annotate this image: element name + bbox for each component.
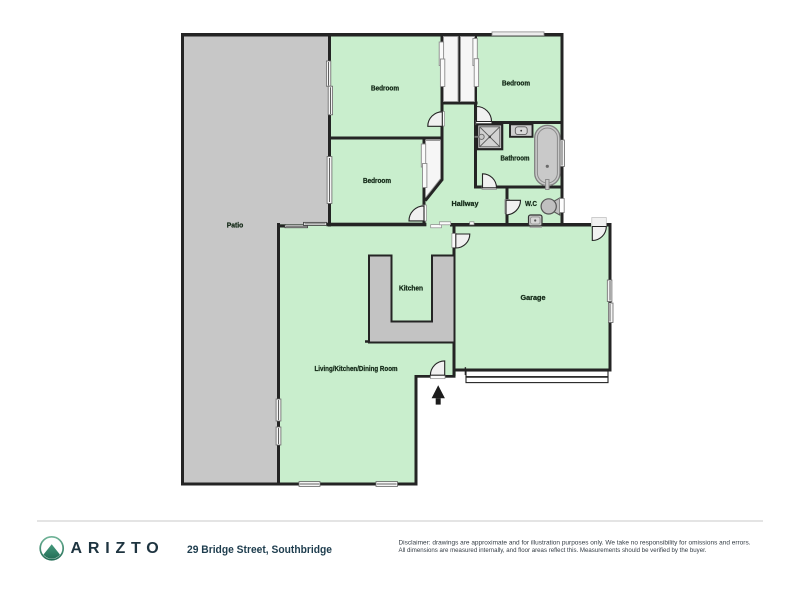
svg-text:ARIZTO: ARIZTO bbox=[71, 540, 165, 557]
svg-text:29 Bridge Street, Southbridge: 29 Bridge Street, Southbridge bbox=[187, 544, 332, 556]
svg-text:Bedroom: Bedroom bbox=[371, 86, 399, 93]
svg-text:All dimensions are measured in: All dimensions are measured internally, … bbox=[399, 547, 707, 554]
svg-text:Bathroom: Bathroom bbox=[501, 156, 530, 163]
svg-text:Disclaimer: drawings are appro: Disclaimer: drawings are approximate and… bbox=[399, 539, 751, 546]
svg-text:Living/Kitchen/Dining Room: Living/Kitchen/Dining Room bbox=[315, 366, 398, 373]
svg-text:Hallway: Hallway bbox=[452, 201, 479, 208]
svg-text:Kitchen: Kitchen bbox=[399, 286, 423, 293]
svg-text:Bedroom: Bedroom bbox=[363, 178, 391, 185]
svg-text:Patio: Patio bbox=[227, 222, 244, 229]
svg-text:Bedroom: Bedroom bbox=[502, 81, 530, 88]
svg-text:Garage: Garage bbox=[521, 295, 546, 302]
svg-text:W.C: W.C bbox=[525, 201, 537, 208]
